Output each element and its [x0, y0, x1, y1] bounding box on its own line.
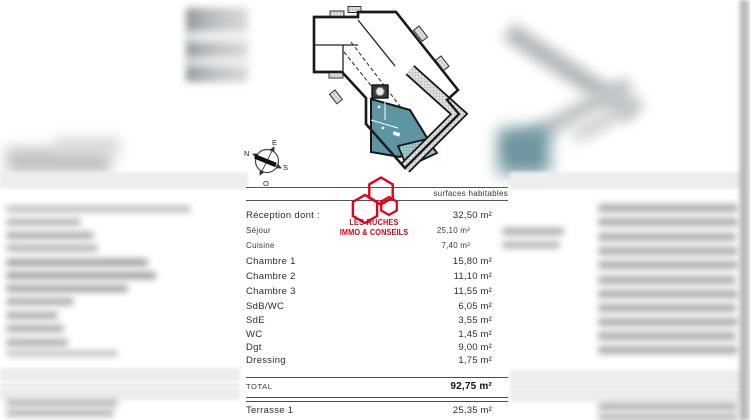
blurred-band	[0, 368, 240, 382]
row-value: 15,80 m²	[453, 256, 492, 267]
table-row-dressing: Dressing 1,75 m²	[246, 354, 508, 366]
blurred-band	[0, 172, 248, 189]
blurred-text-line	[598, 346, 738, 354]
row-value: 1,75 m²	[458, 355, 492, 366]
table-row-chambre-3: Chambre 3 11,55 m²	[246, 285, 508, 297]
blurred-text-line	[6, 339, 68, 346]
blurred-band	[0, 387, 240, 400]
row-value: 1,45 m²	[458, 329, 492, 340]
terrace-label: Terrasse 1	[246, 405, 293, 416]
row-label: WC	[246, 329, 262, 340]
blurred-text-line	[598, 204, 738, 212]
table-row-sde: SdE 3,55 m²	[246, 314, 508, 326]
row-label: SdE	[246, 315, 265, 326]
row-label: SdB/WC	[246, 301, 284, 312]
row-value: 11,55 m²	[454, 286, 492, 297]
blurred-text-line	[6, 298, 74, 305]
row-label: Dgt	[246, 342, 262, 353]
compass-label-n: N	[244, 149, 249, 158]
row-value: 7,40 m²	[441, 241, 470, 250]
row-label: Dressing	[246, 355, 286, 366]
blurred-text-line	[598, 261, 738, 269]
surface-sheet-document: E N S O LES RUCHES IMMO & CONSEILS surfa…	[240, 0, 510, 420]
row-value: 11,10 m²	[454, 271, 492, 282]
row-label: Séjour	[246, 226, 271, 235]
row-value: 32,50 m²	[453, 210, 492, 221]
blurred-text-line	[598, 276, 736, 284]
compass-label-e: E	[272, 138, 277, 147]
blurred-background-left	[0, 0, 248, 420]
blurred-text-line	[6, 312, 58, 319]
blurred-text-line	[6, 232, 94, 239]
blurred-text-line	[6, 259, 148, 266]
blurred-text-line	[598, 403, 738, 410]
table-row-terrasse: Terrasse 1 25,35 m²	[246, 404, 508, 416]
double-rule	[246, 397, 508, 402]
row-label: Cuisine	[246, 241, 275, 250]
row-label: Réception dont :	[246, 210, 320, 221]
row-label: Chambre 1	[246, 256, 296, 267]
blurred-text-line	[598, 233, 736, 241]
blurred-line	[0, 384, 240, 386]
blurred-text-line	[598, 218, 738, 226]
blurred-text-line	[598, 304, 736, 312]
row-value: 25,10 m²	[437, 226, 470, 235]
blurred-background-right	[510, 0, 750, 420]
agency-logo-name: LES RUCHES	[333, 218, 416, 227]
blurred-text-line	[6, 351, 118, 356]
blurred-text-line	[6, 410, 114, 416]
blurred-line	[510, 386, 750, 388]
table-row-wc: WC 1,45 m²	[246, 328, 508, 340]
terrace-value: 25,35 m²	[453, 405, 492, 416]
row-label: Chambre 2	[246, 271, 296, 282]
table-row-chambre-1: Chambre 1 15,80 m²	[246, 255, 508, 267]
blurred-band	[510, 389, 750, 402]
table-row-chambre-2: Chambre 2 11,10 m²	[246, 270, 508, 282]
blurred-text-line	[6, 400, 118, 406]
agency-logo-tagline: IMMO & CONSEILS	[333, 228, 416, 237]
table-row-cuisine: Cuisine 7,40 m²	[246, 240, 508, 250]
row-value: 6,05 m²	[458, 301, 492, 312]
blurred-band	[510, 370, 750, 385]
compass-label-s: S	[283, 163, 288, 172]
total-value: 92,75 m²	[450, 381, 492, 392]
blurred-text-line	[598, 414, 738, 420]
blurred-text-line	[6, 245, 98, 251]
table-row-total: TOTAL 92,75 m²	[246, 380, 508, 393]
table-row-dgt: Dgt 9,00 m²	[246, 341, 508, 353]
blurred-text-line	[502, 228, 564, 235]
blurred-text-line	[502, 242, 560, 248]
blurred-image-block	[186, 8, 248, 82]
total-label: TOTAL	[246, 382, 272, 391]
blurred-text-line	[6, 325, 64, 332]
blurred-text-line	[598, 290, 738, 298]
row-value: 9,00 m²	[458, 342, 492, 353]
row-label: Chambre 3	[246, 286, 296, 297]
blurred-blob	[55, 138, 120, 154]
floor-plan	[295, 0, 515, 190]
blurred-band	[510, 172, 750, 189]
blurred-text-line	[598, 247, 738, 255]
blurred-text-line	[6, 219, 81, 225]
compass-rose: E N S O	[242, 136, 294, 188]
total-separator-line	[246, 377, 508, 378]
blurred-text-line	[6, 206, 191, 212]
table-row-sdb-wc: SdB/WC 6,05 m²	[246, 300, 508, 312]
blurred-text-line	[598, 318, 738, 326]
blurred-text-line	[6, 285, 128, 292]
row-value: 3,55 m²	[458, 315, 492, 326]
blurred-text-line	[6, 272, 156, 279]
blurred-page-edge	[737, 0, 750, 420]
balcony	[329, 90, 342, 104]
page: E N S O LES RUCHES IMMO & CONSEILS surfa…	[0, 0, 750, 420]
blurred-text-line	[598, 332, 736, 340]
